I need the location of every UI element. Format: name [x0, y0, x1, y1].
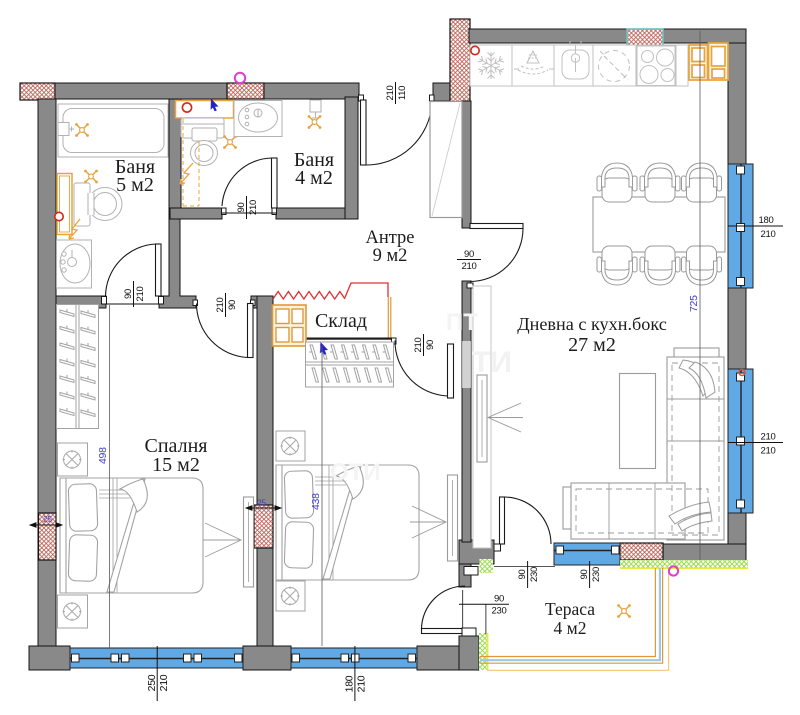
svg-text:ТИ: ТИ	[472, 346, 512, 379]
svg-text:Тераса: Тераса	[545, 599, 595, 619]
svg-text:230: 230	[591, 567, 602, 582]
svg-text:210: 210	[761, 432, 776, 443]
svg-text:210: 210	[413, 338, 424, 353]
svg-text:90: 90	[236, 203, 247, 213]
svg-text:180: 180	[344, 675, 356, 692]
svg-text:Склад: Склад	[315, 310, 367, 332]
svg-text:210: 210	[215, 298, 226, 313]
svg-text:210: 210	[248, 200, 259, 215]
svg-text:90: 90	[517, 570, 528, 580]
svg-text:Дневна с кухн.бокс: Дневна с кухн.бокс	[517, 314, 667, 334]
svg-text:9 м2: 9 м2	[373, 246, 408, 266]
svg-text:230: 230	[529, 567, 540, 582]
svg-text:90: 90	[464, 249, 474, 260]
svg-text:25: 25	[43, 514, 52, 524]
svg-text:210: 210	[761, 229, 776, 240]
svg-text:498: 498	[97, 447, 109, 464]
svg-text:5 м2: 5 м2	[116, 174, 154, 196]
svg-text:438: 438	[310, 493, 322, 510]
svg-text:ПТ: ПТ	[446, 309, 478, 336]
svg-text:230: 230	[492, 606, 507, 617]
svg-text:725: 725	[688, 295, 700, 312]
svg-text:90: 90	[227, 300, 238, 310]
svg-text:210: 210	[356, 675, 368, 692]
svg-text:210: 210	[158, 674, 170, 691]
svg-text:27 м2: 27 м2	[568, 334, 616, 356]
svg-text:90: 90	[494, 594, 504, 605]
svg-text:90: 90	[123, 289, 134, 299]
svg-text:Антре: Антре	[365, 228, 414, 248]
svg-text:250: 250	[146, 674, 158, 691]
svg-text:4 м2: 4 м2	[554, 618, 587, 638]
svg-text:90: 90	[579, 570, 590, 580]
svg-text:90: 90	[425, 340, 436, 350]
svg-text:210: 210	[761, 446, 776, 457]
svg-text:210: 210	[385, 86, 396, 101]
svg-text:180: 180	[759, 215, 774, 226]
svg-text:110: 110	[397, 86, 408, 100]
svg-text:210: 210	[462, 261, 477, 272]
svg-text:4 м2: 4 м2	[295, 167, 333, 189]
svg-text:210: 210	[135, 287, 146, 302]
svg-text:25: 25	[257, 498, 266, 508]
svg-text:15 м2: 15 м2	[152, 454, 200, 476]
svg-text:ОТИ: ОТИ	[330, 459, 381, 486]
